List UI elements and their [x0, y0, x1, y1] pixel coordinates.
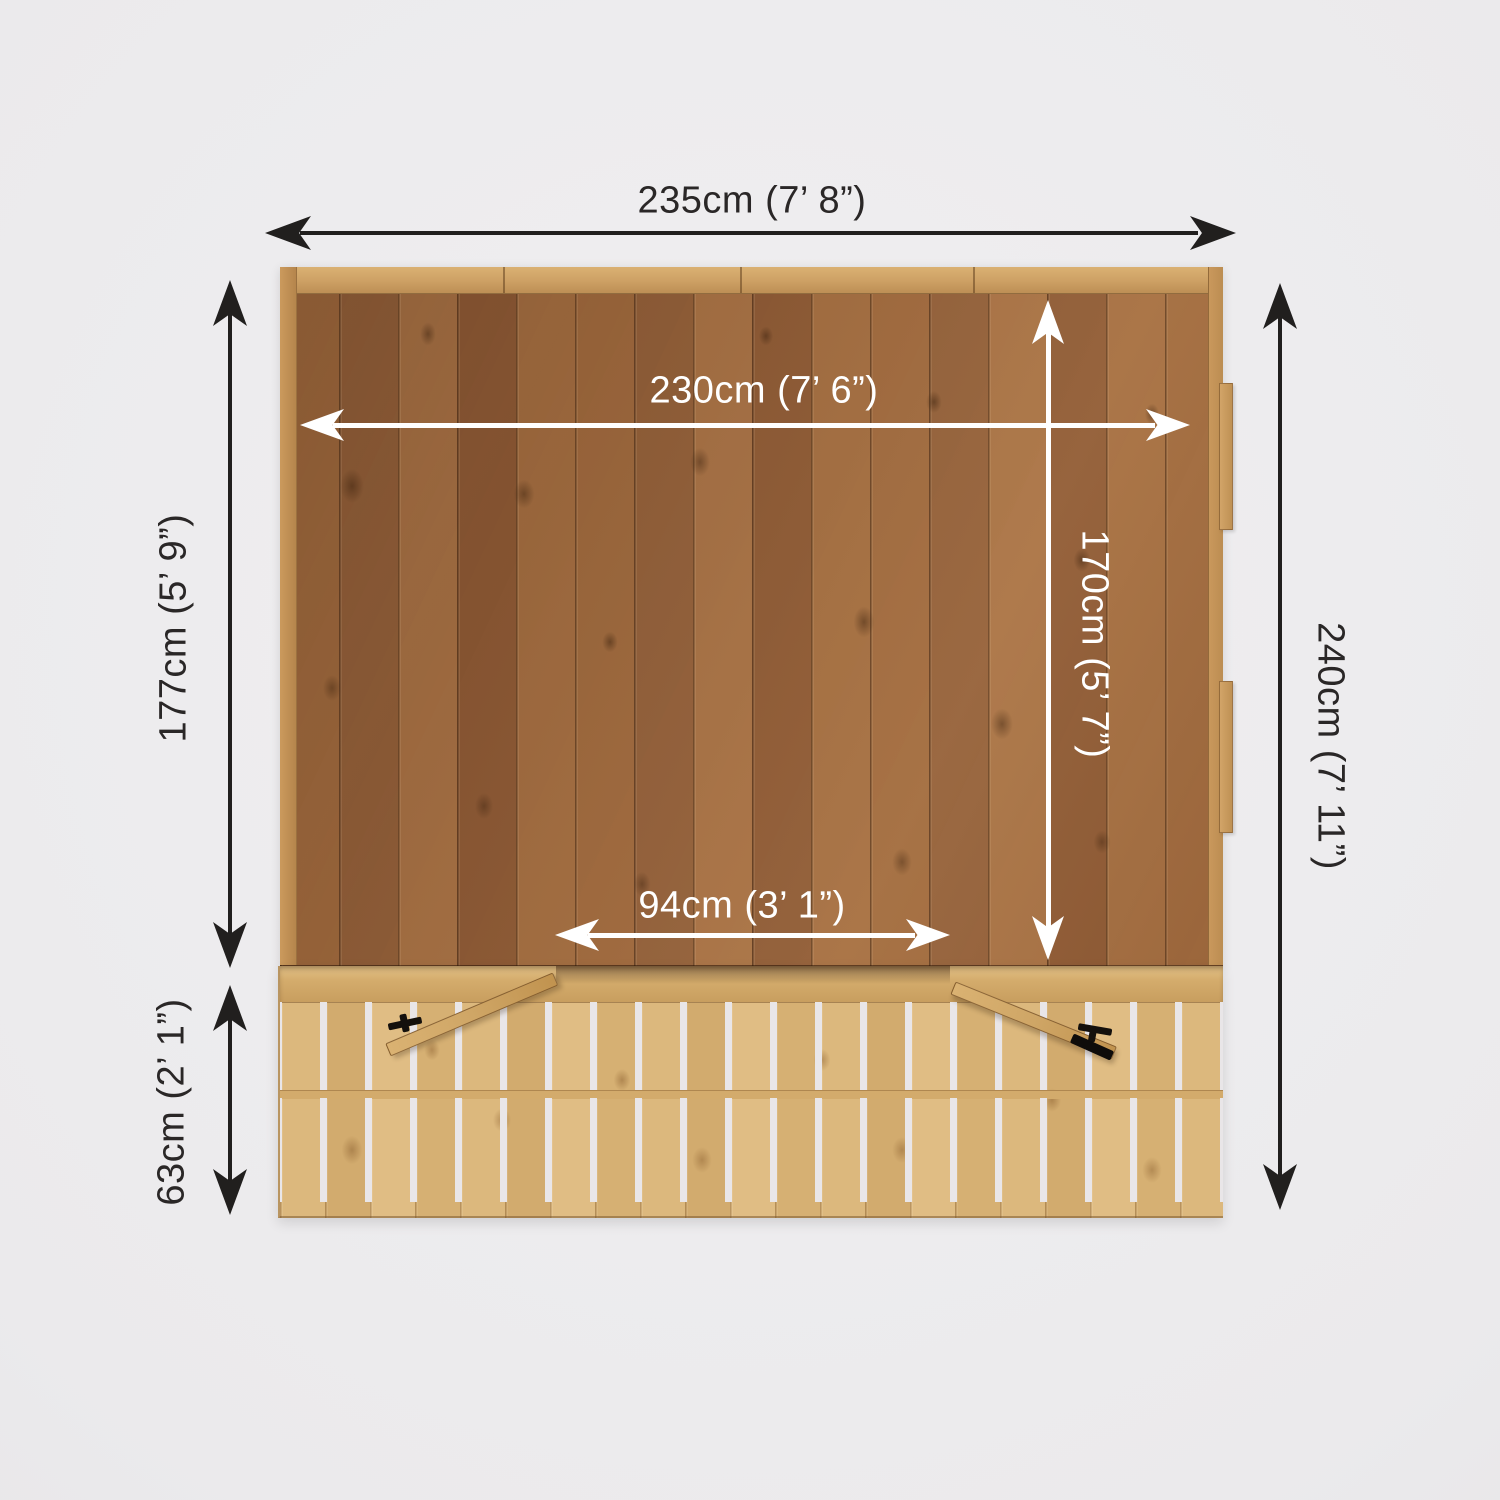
dimension-shaft-overall-depth	[1278, 316, 1282, 1178]
dimension-shaft-veranda-depth	[228, 1016, 232, 1186]
dimension-shaft-door-opening	[588, 933, 915, 938]
roof-trim-seam	[973, 267, 975, 293]
dimension-label-overall-depth: 240cm (7’ 11”)	[1309, 622, 1352, 870]
dimension-shaft-internal-depth	[1046, 332, 1051, 928]
roof-trim-left	[280, 267, 297, 965]
product-dimension-diagram: 235cm (7’ 8”) 177cm (5’ 9”) 63cm (2’ 1”)…	[0, 0, 1500, 1500]
deck-slats-lower	[280, 1098, 1223, 1202]
dimension-label-door-opening: 94cm (3’ 1”)	[638, 885, 845, 928]
dimension-label-main-depth: 177cm (5’ 9”)	[153, 514, 196, 743]
roof-trim-seam	[740, 267, 742, 293]
dimension-label-veranda-depth: 63cm (2’ 1”)	[151, 998, 194, 1205]
roof-trim-top	[280, 267, 1223, 294]
door-opening-shadow	[556, 966, 950, 984]
dimension-label-internal-width: 230cm (7’ 6”)	[650, 370, 879, 413]
dimension-shaft-overall-width	[300, 231, 1198, 235]
roof-trim-seam	[503, 267, 505, 293]
window-sill-upper	[1219, 383, 1233, 530]
dimension-shaft-main-depth	[228, 312, 232, 936]
roof-trim-right	[1208, 267, 1223, 965]
window-sill-lower	[1219, 681, 1233, 833]
dimension-label-overall-width: 235cm (7’ 8”)	[638, 180, 867, 223]
veranda-deck	[278, 966, 1223, 1218]
dimension-shaft-internal-width	[333, 423, 1155, 428]
dimension-label-internal-depth: 170cm (5’ 7”)	[1073, 530, 1116, 759]
